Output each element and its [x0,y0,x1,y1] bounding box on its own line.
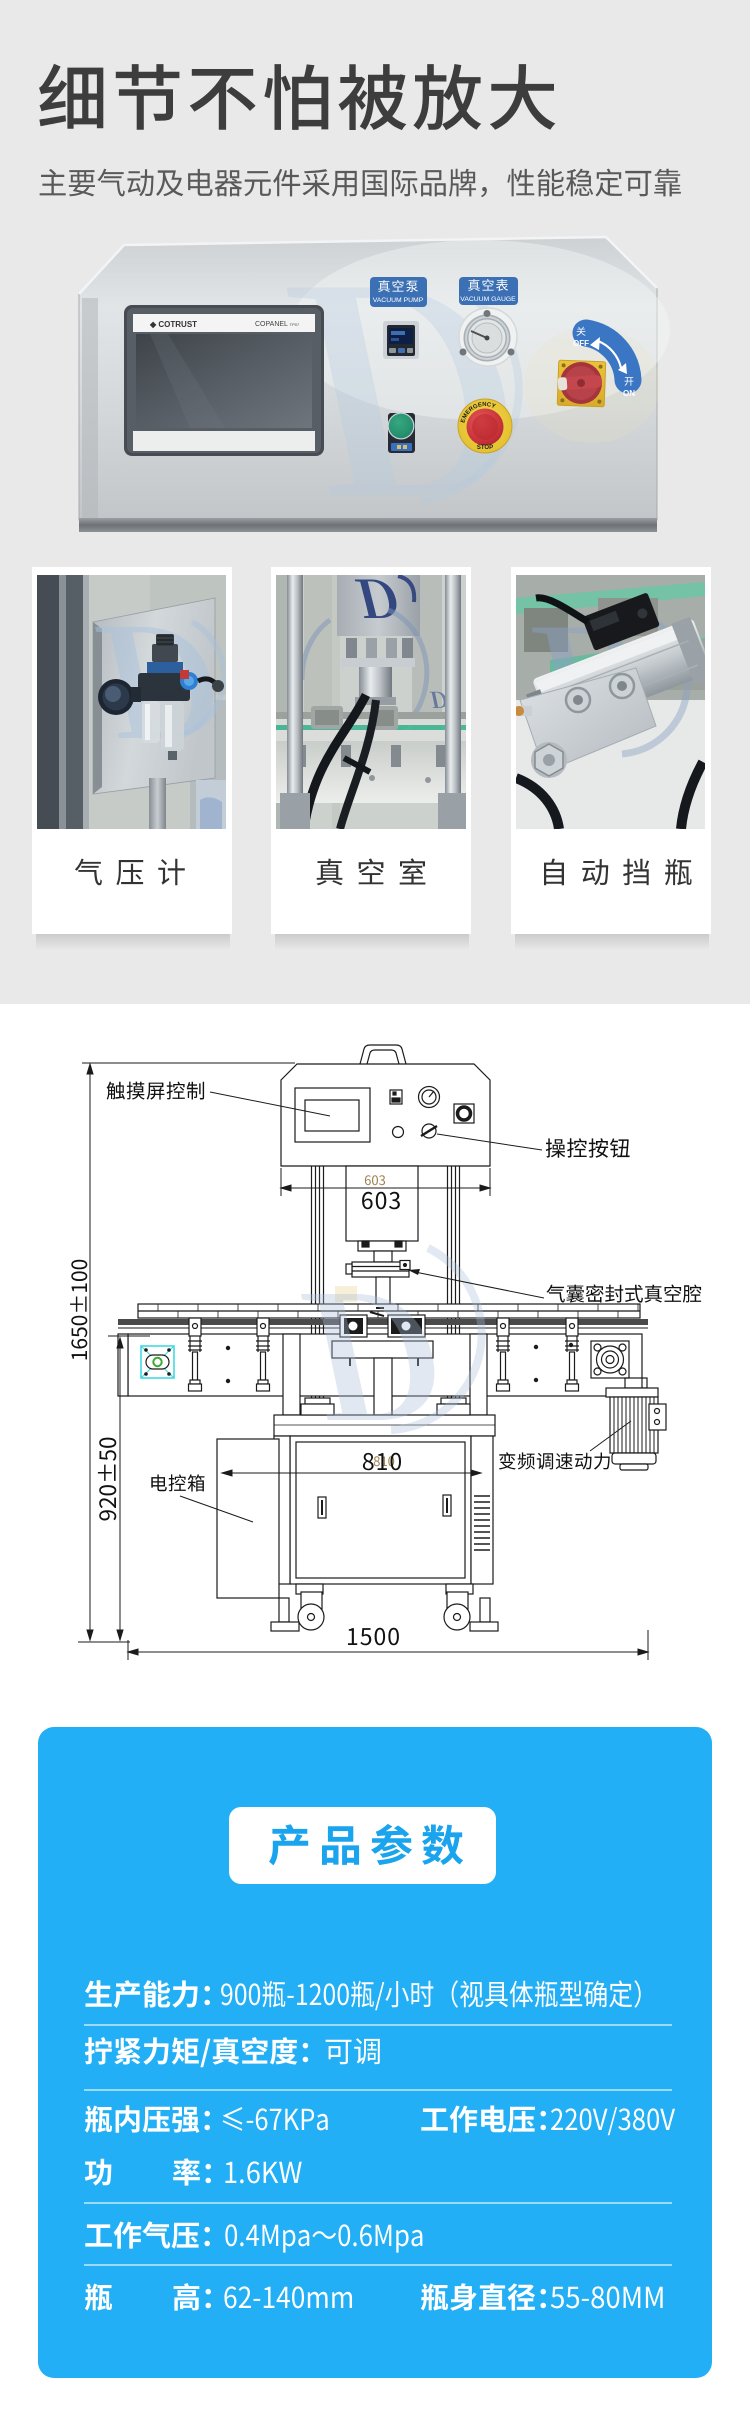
svg-text:STOP: STOP [477,445,493,451]
svg-text:OFF: OFF [573,339,589,348]
svg-text:VACUUM PUMP: VACUUM PUMP [373,297,424,304]
svg-text:◆ COTRUST: ◆ COTRUST [149,320,197,329]
svg-text:ON: ON [623,389,635,398]
svg-text:COPANEL TP07: COPANEL TP07 [255,321,300,328]
svg-text:VACUUM GAUGE: VACUUM GAUGE [460,296,516,303]
